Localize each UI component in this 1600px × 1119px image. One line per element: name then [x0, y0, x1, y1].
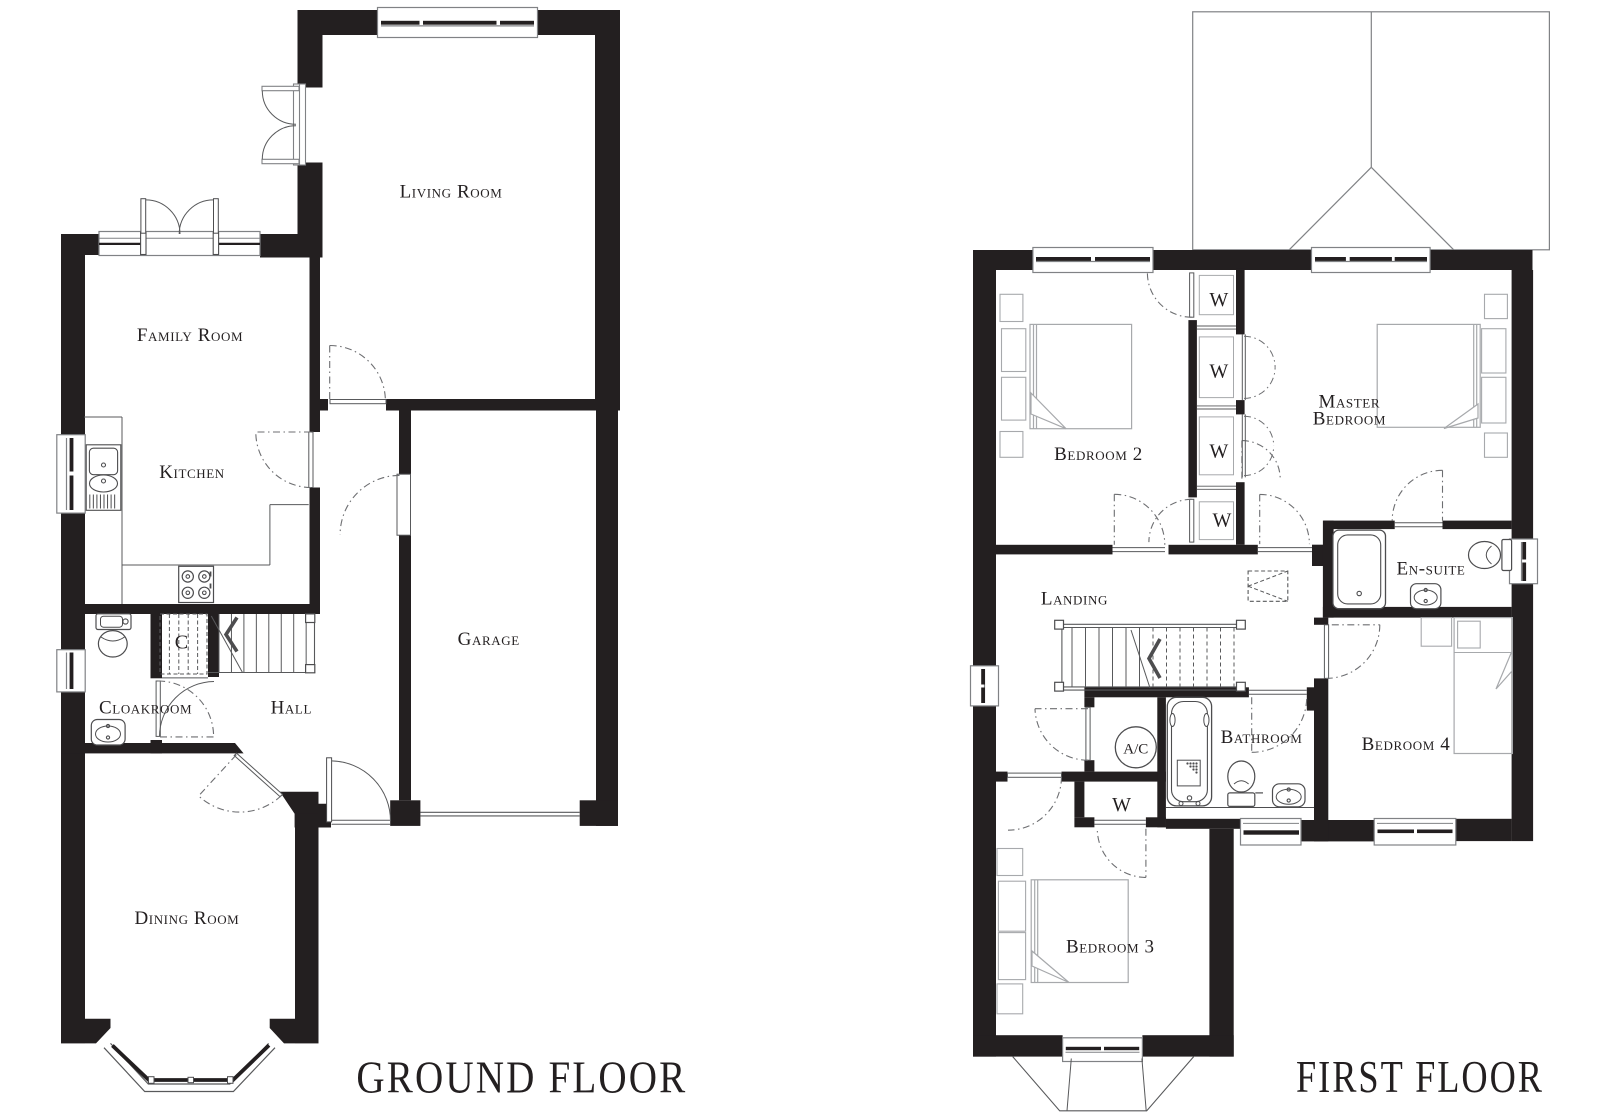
- svg-text:Hall: Hall: [271, 698, 312, 719]
- svg-text:Bedroom 2: Bedroom 2: [1054, 444, 1143, 465]
- svg-text:W: W: [1209, 289, 1228, 311]
- svg-text:Kitchen: Kitchen: [159, 462, 225, 483]
- svg-text:Garage: Garage: [458, 629, 520, 650]
- svg-text:Bathroom: Bathroom: [1221, 727, 1303, 748]
- svg-text:W: W: [1209, 360, 1228, 382]
- svg-text:FIRST FLOOR: FIRST FLOOR: [1296, 1051, 1544, 1102]
- svg-text:Dining Room: Dining Room: [134, 908, 239, 929]
- svg-text:A/C: A/C: [1123, 741, 1148, 757]
- svg-text:En-suite: En-suite: [1397, 559, 1466, 580]
- svg-text:W: W: [1212, 510, 1231, 532]
- svg-text:Family Room: Family Room: [137, 325, 243, 346]
- svg-text:Living Room: Living Room: [400, 182, 503, 203]
- svg-text:Bedroom: Bedroom: [1313, 408, 1386, 429]
- svg-text:Cloakroom: Cloakroom: [99, 698, 192, 719]
- svg-text:GROUND FLOOR: GROUND FLOOR: [356, 1052, 687, 1103]
- svg-text:Landing: Landing: [1041, 588, 1108, 609]
- svg-text:W: W: [1112, 794, 1131, 816]
- svg-text:C: C: [175, 632, 188, 654]
- svg-text:Bedroom 3: Bedroom 3: [1066, 937, 1155, 958]
- svg-text:W: W: [1209, 440, 1228, 462]
- svg-text:Bedroom 4: Bedroom 4: [1362, 734, 1451, 755]
